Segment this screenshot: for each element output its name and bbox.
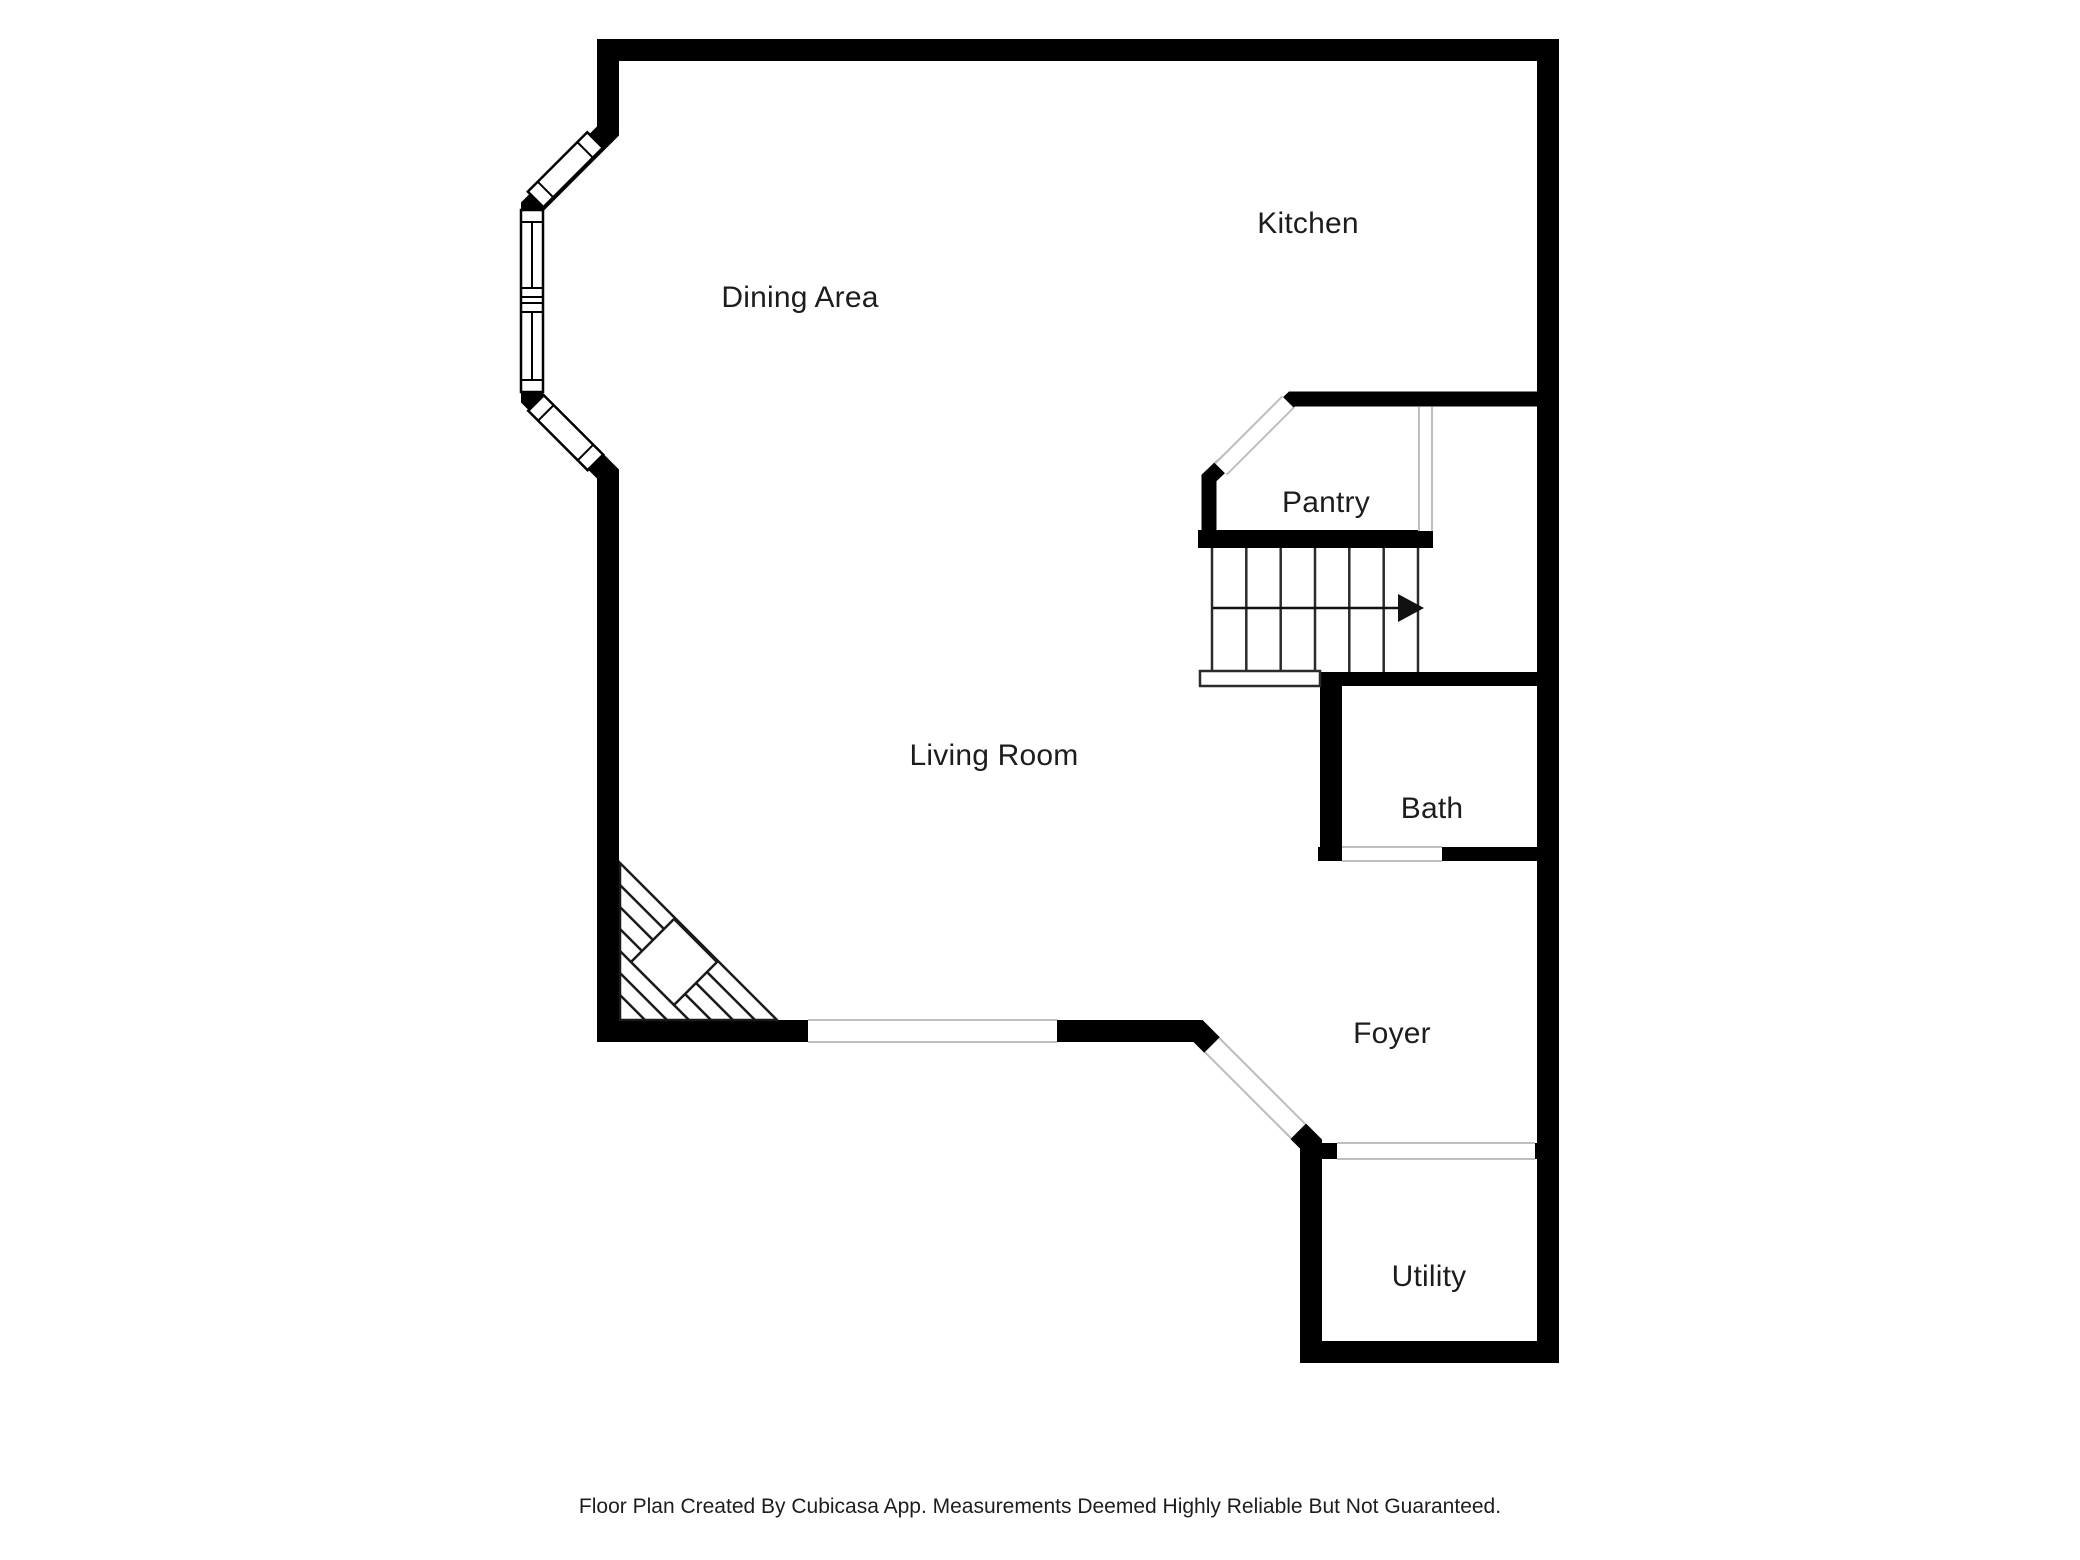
stairs-arrow-icon bbox=[1398, 594, 1424, 622]
room-label-kitchen: Kitchen bbox=[1257, 207, 1358, 241]
room-label-living-room: Living Room bbox=[910, 739, 1079, 773]
room-label-utility: Utility bbox=[1392, 1260, 1467, 1294]
floor-plan-svg bbox=[0, 0, 2080, 1560]
fireplace bbox=[620, 863, 777, 1020]
opening-utility-door bbox=[1337, 1141, 1535, 1161]
room-label-foyer: Foyer bbox=[1353, 1017, 1431, 1051]
footer-disclaimer: Floor Plan Created By Cubicasa App. Meas… bbox=[579, 1495, 1501, 1519]
opening-entry-diagonal bbox=[1204, 1037, 1306, 1139]
room-label-bath: Bath bbox=[1401, 792, 1464, 826]
room-label-pantry: Pantry bbox=[1282, 486, 1370, 520]
opening-bath-door bbox=[1342, 845, 1442, 863]
floor-plan: Kitchen Dining Area Pantry Living Room B… bbox=[0, 0, 2080, 1560]
bay-window-upper-diagonal bbox=[528, 132, 603, 207]
opening-pantry-side-door bbox=[1419, 407, 1432, 531]
bay-window-lower-diagonal bbox=[528, 395, 603, 470]
bay-window-vertical bbox=[521, 210, 543, 392]
opening-living-room-south bbox=[808, 1018, 1057, 1044]
stair-landing bbox=[1200, 671, 1320, 686]
opening-pantry-diagonal bbox=[1214, 396, 1294, 476]
room-label-dining-area: Dining Area bbox=[721, 281, 878, 315]
stairs bbox=[1200, 548, 1424, 686]
bay-window bbox=[521, 132, 603, 470]
